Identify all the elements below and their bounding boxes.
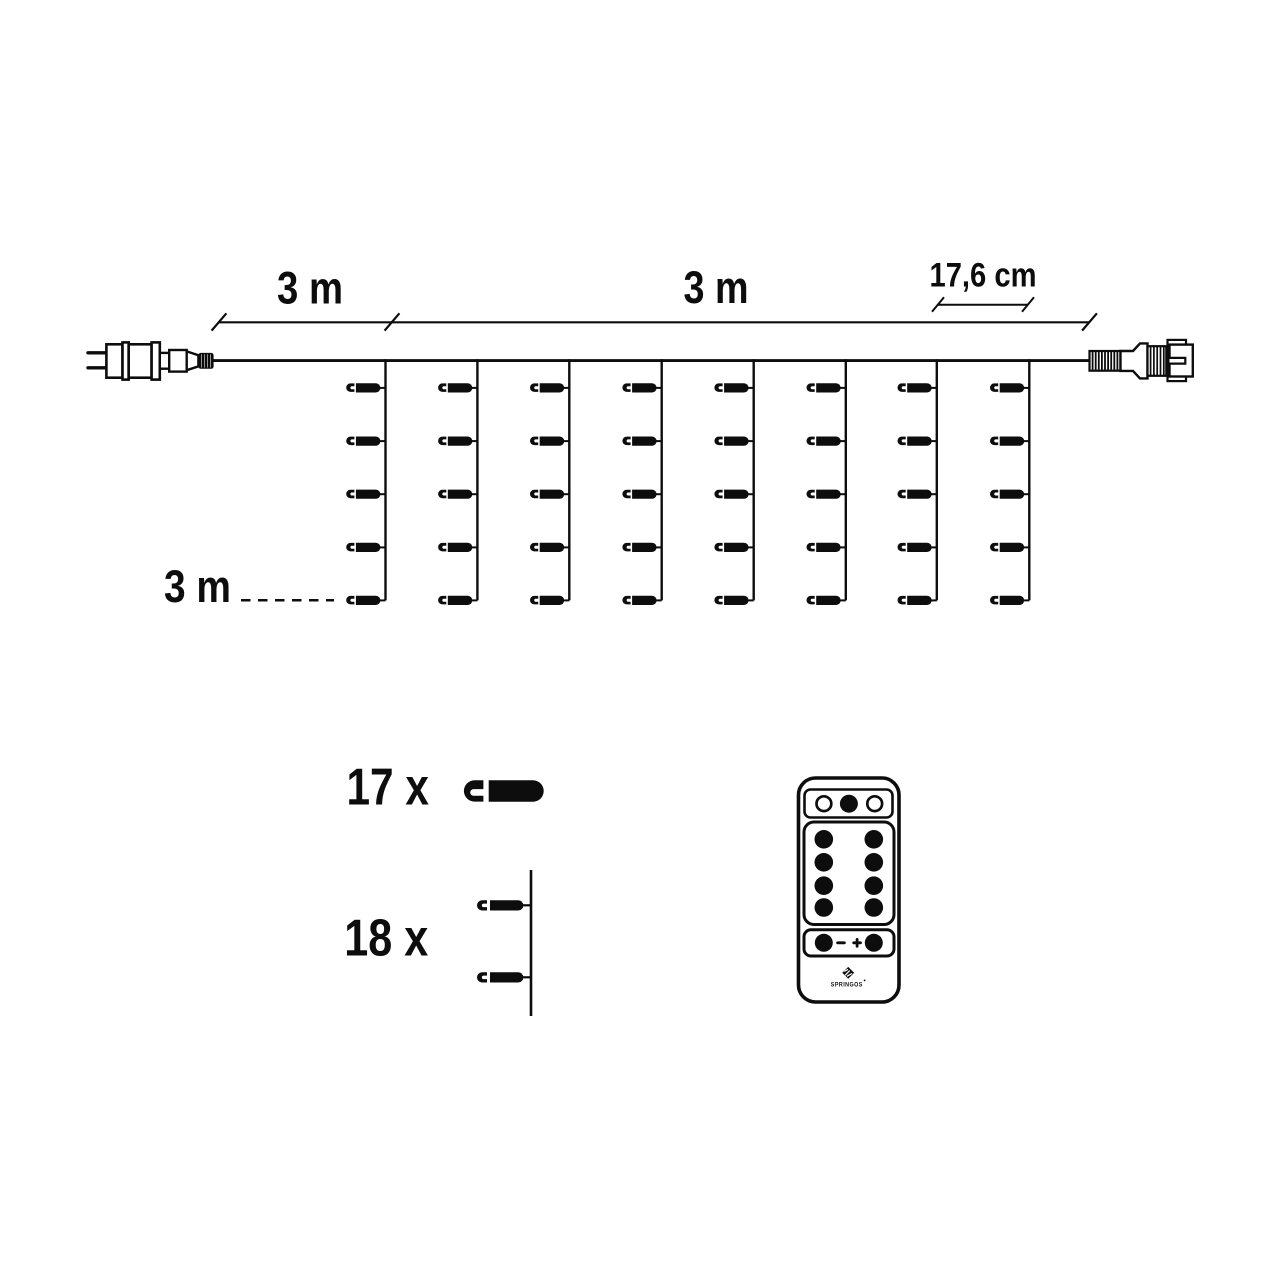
- svg-text:17,6 cm: 17,6 cm: [930, 257, 1037, 295]
- svg-text:17 x: 17 x: [346, 758, 429, 816]
- svg-text:18 x: 18 x: [344, 910, 428, 968]
- svg-text:SPRINGOS: SPRINGOS: [831, 982, 863, 989]
- svg-text:3 m: 3 m: [277, 263, 343, 314]
- svg-text:3 m: 3 m: [684, 262, 749, 313]
- svg-text:3 m: 3 m: [164, 561, 231, 612]
